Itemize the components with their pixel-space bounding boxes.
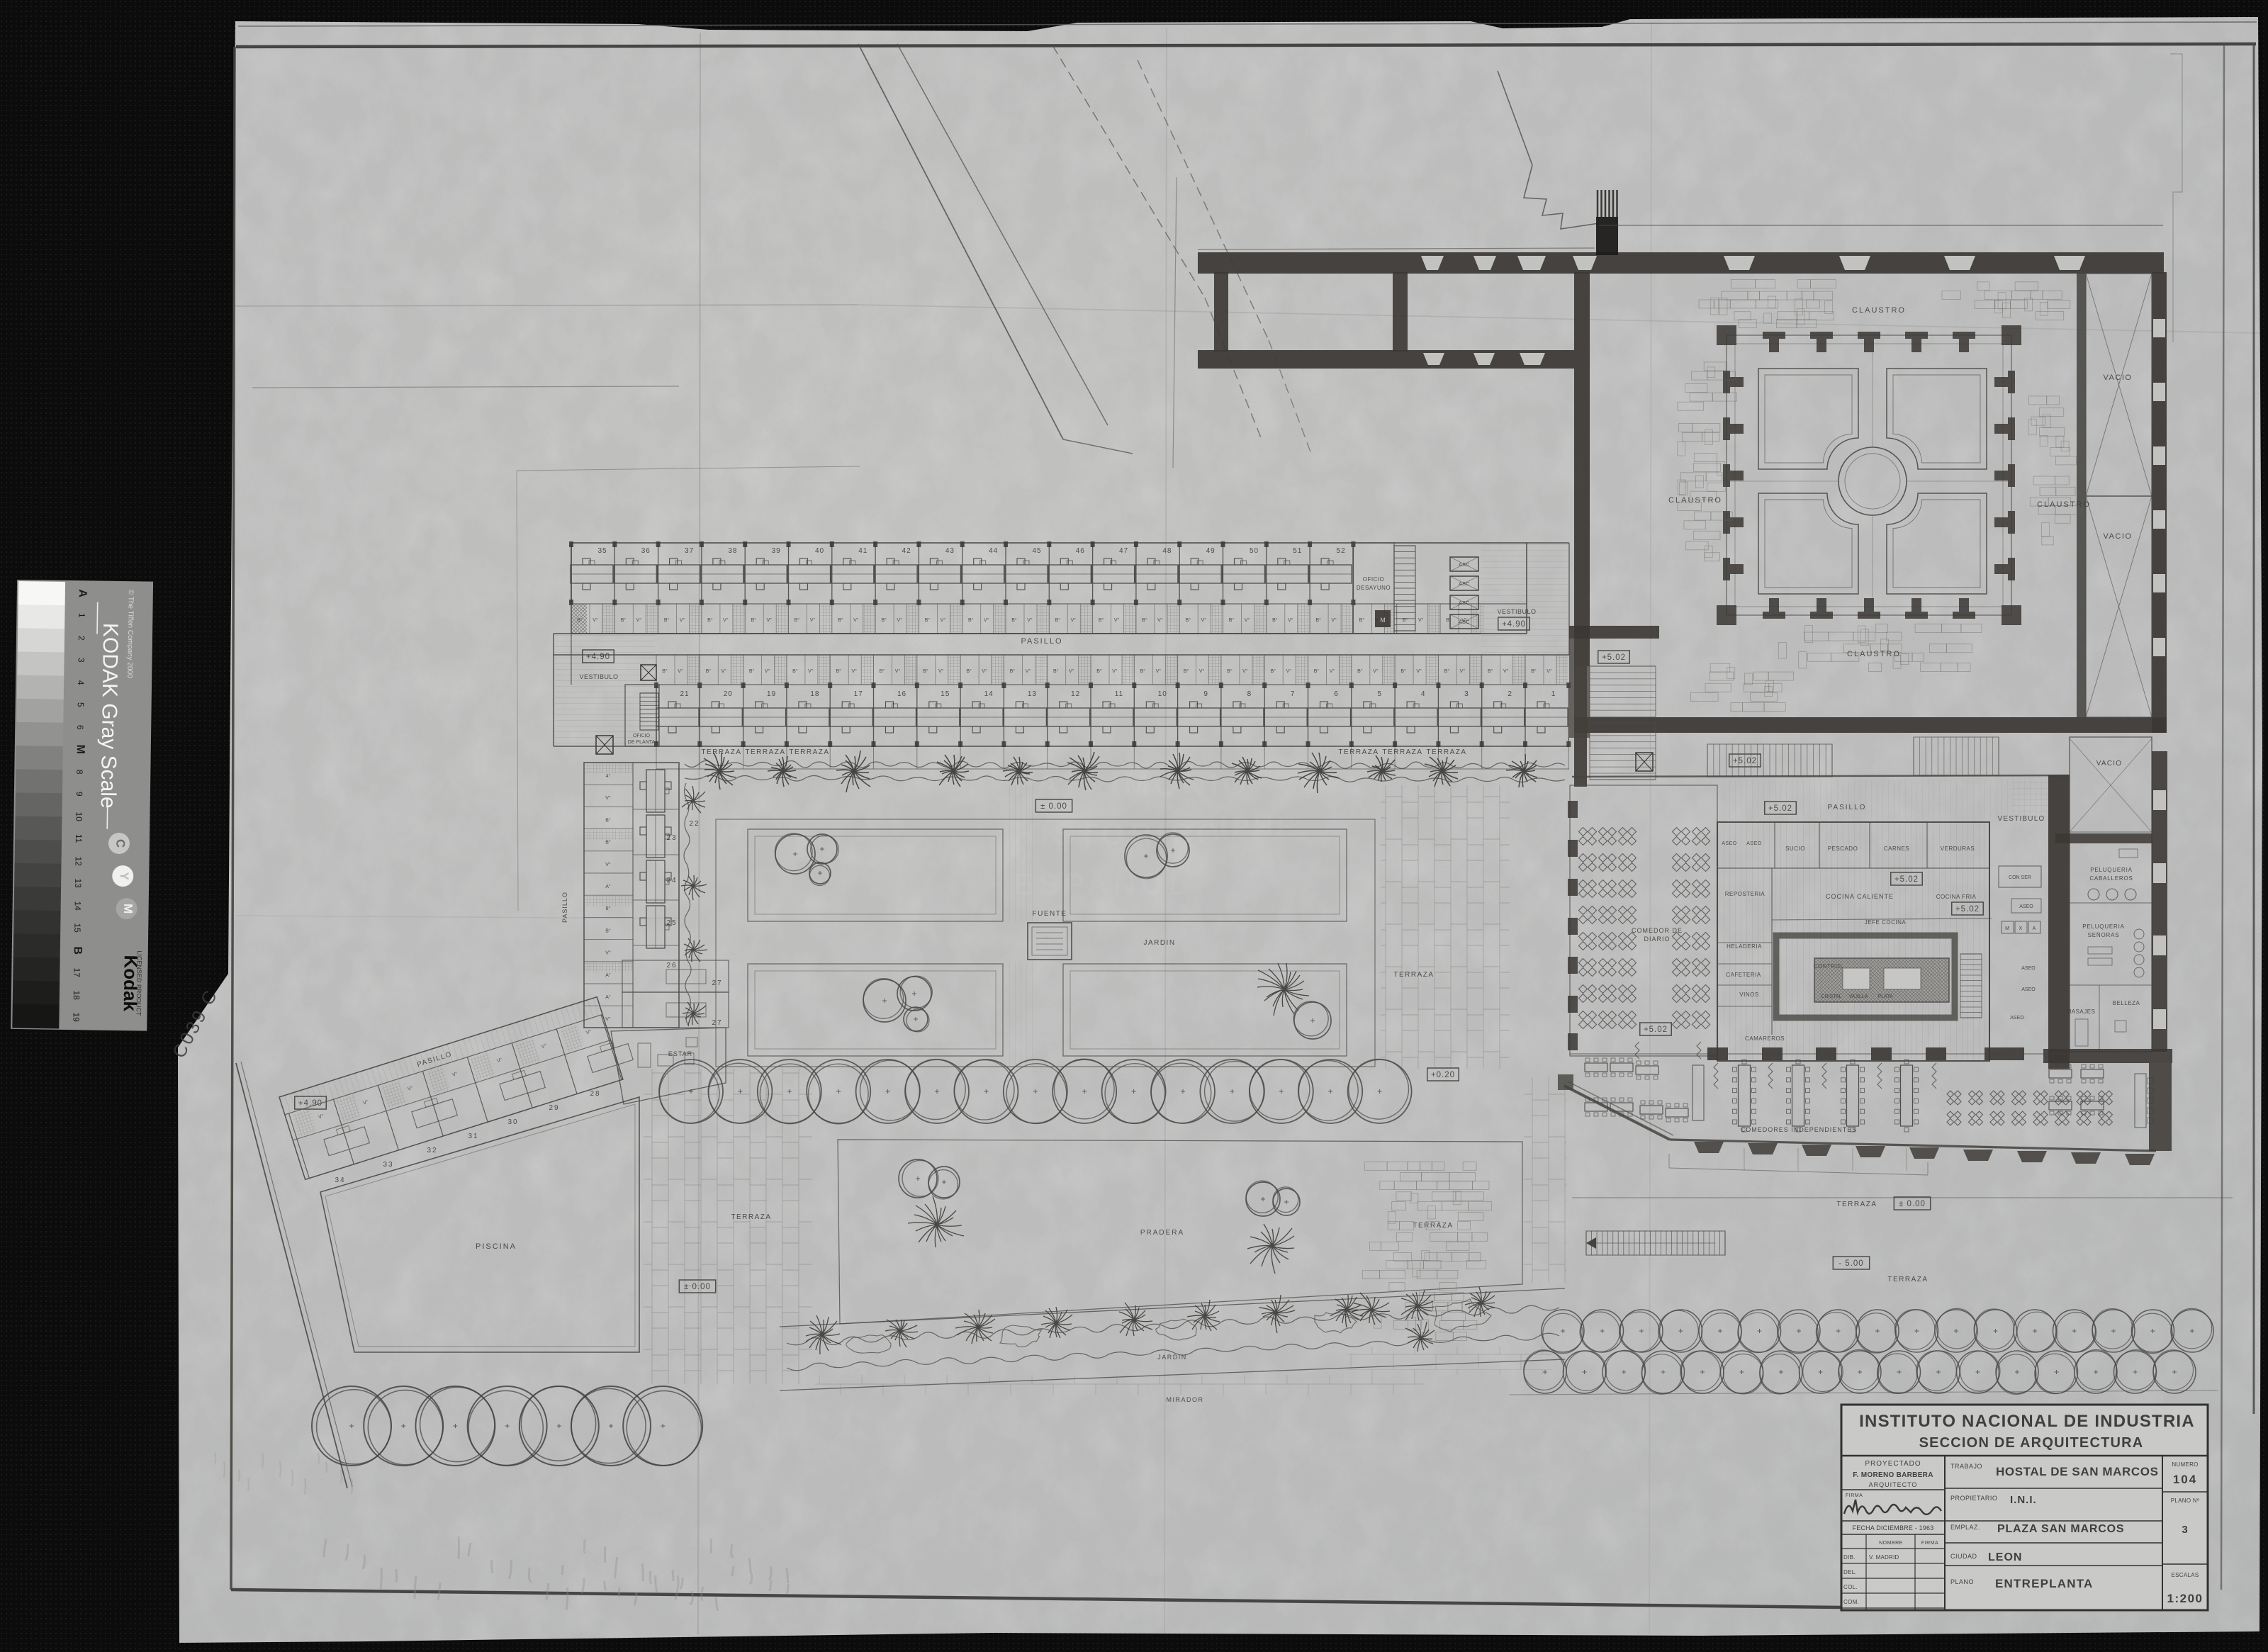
- svg-text:TERRAZA: TERRAZA: [1836, 1201, 1877, 1208]
- svg-text:B°: B°: [1142, 617, 1147, 623]
- svg-text:ASC: ASC: [1459, 601, 1470, 606]
- svg-text:DEL: DEL: [991, 768, 1034, 790]
- svg-text:5: 5: [1378, 690, 1383, 698]
- svg-text:V°: V°: [636, 617, 642, 623]
- svg-text:+5.02: +5.02: [1955, 905, 1980, 914]
- svg-text:+4.90: +4.90: [1502, 620, 1526, 629]
- svg-text:13: 13: [73, 878, 83, 888]
- svg-text:NUMERO: NUMERO: [2172, 1461, 2198, 1468]
- svg-text:41: 41: [858, 547, 868, 555]
- svg-text:35: 35: [597, 547, 607, 555]
- svg-text:V°: V°: [808, 668, 814, 674]
- svg-text:B°: B°: [1270, 668, 1276, 674]
- svg-text:4°: 4°: [606, 773, 611, 779]
- svg-text:+4.90: +4.90: [586, 653, 610, 661]
- svg-text:3: 3: [76, 658, 86, 663]
- svg-text:9: 9: [74, 792, 84, 797]
- svg-text:IPHE: IPHE: [1219, 811, 1299, 843]
- svg-text:48: 48: [1162, 547, 1172, 555]
- svg-text:CAMAREROS: CAMAREROS: [1745, 1035, 1785, 1042]
- svg-text:+5.02: +5.02: [1602, 653, 1626, 662]
- svg-text:29: 29: [549, 1104, 559, 1112]
- svg-text:OFICIO: OFICIO: [633, 734, 651, 738]
- svg-text:PLANO: PLANO: [1950, 1578, 1974, 1585]
- svg-text:51: 51: [1293, 547, 1302, 555]
- svg-text:V°: V°: [895, 668, 901, 674]
- svg-text:21: 21: [680, 690, 689, 698]
- svg-text:COMEDOR DE: COMEDOR DE: [1632, 927, 1683, 934]
- svg-text:45: 45: [1032, 547, 1041, 555]
- svg-text:B°: B°: [605, 928, 611, 933]
- svg-text:V°: V°: [984, 617, 989, 623]
- svg-text:12: 12: [73, 856, 83, 866]
- svg-text:1:200: 1:200: [2167, 1592, 2204, 1605]
- svg-text:B°: B°: [1096, 668, 1102, 674]
- svg-text:ASC: ASC: [1459, 563, 1470, 568]
- svg-text:B°: B°: [881, 617, 887, 623]
- svg-text:+4.90: +4.90: [298, 1099, 322, 1108]
- svg-text:46: 46: [1076, 547, 1085, 555]
- svg-text:B°: B°: [1227, 668, 1233, 674]
- svg-text:B°: B°: [1315, 617, 1321, 623]
- svg-text:SECCION DE ARQUITECTURA: SECCION DE ARQUITECTURA: [1919, 1435, 2144, 1451]
- svg-text:V°: V°: [1503, 668, 1509, 674]
- svg-text:V°: V°: [1112, 668, 1118, 674]
- svg-text:B°: B°: [1099, 617, 1104, 623]
- svg-text:OFICIO: OFICIO: [1363, 576, 1385, 583]
- svg-text:B°: B°: [1055, 617, 1061, 623]
- svg-text:V°: V°: [605, 795, 611, 801]
- svg-text:43: 43: [945, 547, 955, 555]
- svg-text:V°: V°: [1069, 668, 1074, 674]
- svg-text:B°: B°: [795, 617, 800, 623]
- svg-text:CRISTAL: CRISTAL: [1821, 994, 1841, 999]
- svg-text:50: 50: [1250, 547, 1259, 555]
- svg-text:PELUQUERIA: PELUQUERIA: [2090, 867, 2133, 873]
- svg-text:B°: B°: [792, 668, 798, 674]
- svg-text:TERRAZA: TERRAZA: [1413, 1222, 1453, 1230]
- svg-text:HELADERIA: HELADERIA: [1727, 943, 1762, 950]
- svg-text:V°: V°: [680, 617, 685, 623]
- svg-text:32: 32: [427, 1147, 437, 1154]
- svg-text:B°: B°: [1053, 668, 1059, 674]
- svg-text:44: 44: [989, 547, 998, 555]
- svg-text:PESCADO: PESCADO: [1828, 845, 1858, 852]
- svg-text:ASC: ASC: [1459, 620, 1470, 625]
- svg-text:M: M: [74, 744, 86, 754]
- svg-text:VESTIBULO: VESTIBULO: [1497, 608, 1536, 615]
- svg-text:PLATA: PLATA: [1877, 994, 1892, 999]
- svg-text:B°: B°: [1140, 668, 1146, 674]
- svg-text:20: 20: [724, 690, 733, 698]
- svg-text:V°: V°: [766, 617, 772, 623]
- svg-text:12: 12: [1071, 690, 1080, 698]
- svg-text:C: C: [113, 839, 127, 848]
- svg-text:NOMBRE: NOMBRE: [1879, 1541, 1903, 1546]
- svg-text:CIUDAD: CIUDAD: [1950, 1553, 1977, 1560]
- svg-text:B°: B°: [1184, 668, 1189, 674]
- svg-text:DE PLANTA: DE PLANTA: [628, 740, 656, 745]
- svg-text:V°: V°: [1330, 668, 1335, 674]
- svg-text:B°: B°: [621, 617, 627, 623]
- svg-text:CARNES: CARNES: [1884, 845, 1909, 852]
- svg-text:LICENSED PRODUCT: LICENSED PRODUCT: [135, 950, 143, 1016]
- svg-text:A°: A°: [605, 884, 611, 889]
- svg-text:HISTORICO: HISTORICO: [1014, 817, 1225, 852]
- svg-text:CLAUSTRO: CLAUSTRO: [2037, 500, 2091, 509]
- svg-text:V°: V°: [605, 1016, 611, 1022]
- svg-text:B°: B°: [836, 668, 841, 674]
- svg-text:104: 104: [2173, 1473, 2197, 1486]
- svg-text:B°: B°: [1010, 668, 1016, 674]
- svg-text:+5.02: +5.02: [1894, 875, 1919, 884]
- svg-text:FIRMA: FIRMA: [1921, 1541, 1938, 1546]
- svg-text:PASILLO: PASILLO: [1021, 637, 1062, 646]
- svg-text:18: 18: [72, 990, 82, 1000]
- svg-text:TERRAZA: TERRAZA: [1887, 1276, 1928, 1283]
- svg-text:V°: V°: [1286, 668, 1291, 674]
- svg-text:V°: V°: [1114, 617, 1120, 623]
- svg-text:± 0.00: ± 0.00: [684, 1283, 711, 1291]
- svg-text:26: 26: [666, 962, 677, 970]
- svg-text:6: 6: [75, 725, 85, 730]
- svg-text:V°: V°: [1199, 668, 1205, 674]
- svg-text:JEFE COCINA: JEFE COCINA: [1865, 919, 1907, 926]
- svg-text:A°: A°: [605, 972, 611, 978]
- svg-text:V°: V°: [851, 668, 857, 674]
- svg-text:TERRAZA: TERRAZA: [789, 748, 829, 756]
- svg-text:V°: V°: [1027, 617, 1033, 623]
- svg-text:V°: V°: [605, 862, 611, 867]
- svg-text:CLAUSTRO: CLAUSTRO: [1852, 306, 1906, 315]
- svg-text:B°: B°: [749, 668, 755, 674]
- svg-text:8: 8: [1247, 690, 1252, 698]
- svg-text:B°: B°: [1531, 668, 1537, 674]
- svg-text:DIARIO: DIARIO: [1644, 935, 1670, 943]
- svg-text:B°: B°: [1314, 668, 1320, 674]
- svg-text:FECHA DICIEMBRE - 1963: FECHA DICIEMBRE - 1963: [1853, 1524, 1934, 1532]
- svg-text:A°: A°: [605, 994, 611, 1000]
- svg-text:33: 33: [383, 1161, 393, 1169]
- svg-text:ESTAR: ESTAR: [668, 1050, 692, 1057]
- svg-text:JARDIN: JARDIN: [1157, 1354, 1187, 1361]
- svg-text:B°: B°: [1357, 668, 1363, 674]
- svg-text:JARDIN: JARDIN: [1143, 939, 1175, 947]
- svg-text:2: 2: [77, 636, 86, 641]
- svg-text:V°: V°: [1071, 617, 1077, 623]
- svg-text:TRABAJO: TRABAJO: [1950, 1463, 1982, 1470]
- svg-text:22: 22: [689, 820, 700, 828]
- svg-text:V°: V°: [1331, 617, 1337, 623]
- svg-text:24: 24: [666, 877, 677, 884]
- svg-text:COL.: COL.: [1843, 1584, 1858, 1590]
- svg-text:27: 27: [712, 979, 722, 987]
- svg-text:V°: V°: [1156, 668, 1162, 674]
- svg-text:B°: B°: [1229, 617, 1235, 623]
- svg-text:A: A: [2033, 926, 2036, 931]
- svg-text:34: 34: [335, 1176, 345, 1184]
- svg-text:14: 14: [73, 901, 83, 911]
- svg-text:B°: B°: [1272, 617, 1278, 623]
- svg-text:PASILLO: PASILLO: [561, 892, 568, 923]
- svg-text:F. MORENO BARBERA: F. MORENO BARBERA: [1853, 1471, 1933, 1479]
- svg-text:V°: V°: [938, 668, 944, 674]
- svg-text:36: 36: [641, 547, 651, 555]
- svg-text:V°: V°: [1242, 668, 1248, 674]
- svg-text:COCINA FRIA: COCINA FRIA: [1936, 894, 1977, 900]
- svg-text:TERRAZA: TERRAZA: [1382, 748, 1422, 756]
- svg-text:CONTROL: CONTROL: [1814, 963, 1844, 970]
- svg-text:PATRIMONIO: PATRIMONIO: [1014, 768, 1251, 802]
- svg-text:COM.: COM.: [1843, 1599, 1859, 1605]
- svg-text:31: 31: [468, 1133, 478, 1140]
- svg-text:B°: B°: [1488, 668, 1493, 674]
- svg-text:23: 23: [666, 834, 677, 842]
- svg-text:B°: B°: [1185, 617, 1191, 623]
- svg-text:CON SER: CON SER: [2009, 875, 2031, 880]
- svg-text:VERDURAS: VERDURAS: [1941, 845, 1975, 852]
- svg-text:B°: B°: [605, 840, 611, 845]
- svg-text:1: 1: [1551, 690, 1556, 698]
- svg-text:V°: V°: [1026, 668, 1031, 674]
- svg-text:47: 47: [1119, 547, 1128, 555]
- svg-text:8°: 8°: [606, 906, 611, 911]
- svg-text:CLAUSTRO: CLAUSTRO: [1847, 650, 1901, 658]
- svg-text:B°: B°: [1400, 668, 1406, 674]
- svg-text:1: 1: [77, 613, 86, 618]
- svg-text:PRADERA: PRADERA: [1140, 1229, 1184, 1237]
- svg-text:INSTITUTO NACIONAL DE INDUST: INSTITUTO NACIONAL DE INDUSTRIA: [1859, 1412, 2195, 1431]
- svg-text:LEON: LEON: [1988, 1551, 2022, 1563]
- svg-text:V°: V°: [1460, 668, 1466, 674]
- svg-text:VACIO: VACIO: [2096, 760, 2122, 768]
- svg-text:CABALLEROS: CABALLEROS: [2089, 875, 2133, 882]
- svg-text:5: 5: [76, 702, 86, 707]
- svg-text:TERRAZA: TERRAZA: [1338, 748, 1379, 756]
- svg-text:Y: Y: [118, 872, 131, 880]
- svg-text:8: 8: [74, 770, 84, 775]
- svg-text:MASAJES: MASAJES: [2067, 1008, 2096, 1015]
- svg-text:B°: B°: [1011, 617, 1017, 623]
- svg-text:15: 15: [941, 690, 950, 698]
- svg-text:ASEO: ASEO: [1722, 841, 1737, 846]
- svg-text:ARQUITECTO: ARQUITECTO: [1869, 1481, 1918, 1488]
- svg-text:X: X: [2019, 926, 2023, 931]
- svg-text:VACIO: VACIO: [2104, 373, 2133, 382]
- svg-text:ESPAÑOL: ESPAÑOL: [1014, 866, 1191, 901]
- svg-text:PROYECTADO: PROYECTADO: [1865, 1460, 1921, 1468]
- svg-text:PLAZA SAN MARCOS: PLAZA SAN MARCOS: [1997, 1523, 2124, 1535]
- svg-text:CLAUSTRO: CLAUSTRO: [1668, 496, 1722, 505]
- svg-text:HOSTAL DE SAN MARCOS: HOSTAL DE SAN MARCOS: [1996, 1465, 2159, 1478]
- svg-text:FUENTE: FUENTE: [1033, 910, 1067, 918]
- svg-text:25: 25: [666, 919, 677, 927]
- svg-text:18: 18: [810, 690, 819, 698]
- svg-text:ASEO: ASEO: [2010, 1016, 2024, 1021]
- svg-text:TERRAZA: TERRAZA: [745, 748, 785, 756]
- svg-text:B°: B°: [1444, 668, 1450, 674]
- svg-text:28: 28: [590, 1090, 600, 1098]
- svg-text:V°: V°: [1245, 617, 1250, 623]
- svg-text:10: 10: [1158, 690, 1167, 698]
- svg-text:V°: V°: [810, 617, 816, 623]
- svg-text:B°: B°: [706, 668, 712, 674]
- svg-text:V°: V°: [722, 668, 727, 674]
- svg-text:V°: V°: [678, 668, 683, 674]
- svg-text:3: 3: [1464, 690, 1469, 698]
- svg-text:3: 3: [2182, 1524, 2188, 1536]
- svg-text:TERRAZA: TERRAZA: [1393, 971, 1434, 979]
- svg-text:V°: V°: [982, 668, 987, 674]
- svg-text:27: 27: [712, 1019, 722, 1027]
- svg-text:TERRAZA: TERRAZA: [731, 1213, 771, 1221]
- svg-text:B°: B°: [751, 617, 756, 623]
- svg-text:B°: B°: [662, 668, 668, 674]
- svg-text:37: 37: [685, 547, 694, 555]
- svg-text:ASEO: ASEO: [2019, 904, 2033, 909]
- svg-text:V°: V°: [1157, 617, 1163, 623]
- svg-text:M: M: [121, 904, 135, 914]
- svg-text:PELUQUERIA: PELUQUERIA: [2082, 923, 2125, 930]
- svg-text:B°: B°: [605, 817, 611, 823]
- svg-text:TERRAZA: TERRAZA: [1426, 748, 1466, 756]
- svg-text:ASEO: ASEO: [1746, 841, 1762, 846]
- svg-text:VACIO: VACIO: [2104, 532, 2133, 541]
- svg-text:PROPIETARIO: PROPIETARIO: [1950, 1495, 1997, 1502]
- svg-text:A: A: [77, 589, 89, 597]
- svg-text:42: 42: [902, 547, 911, 555]
- svg-text:EMPLAZ.: EMPLAZ.: [1950, 1524, 1980, 1531]
- svg-text:FIRMA: FIRMA: [1846, 1493, 1863, 1498]
- svg-text:11: 11: [74, 834, 84, 843]
- svg-text:V°: V°: [765, 668, 770, 674]
- svg-text:B°: B°: [707, 617, 713, 623]
- svg-text:VINOS: VINOS: [1739, 991, 1758, 998]
- svg-text:CAFETERIA: CAFETERIA: [1726, 972, 1761, 978]
- svg-text:+0.20: +0.20: [1431, 1071, 1455, 1079]
- svg-text:17: 17: [854, 690, 863, 698]
- svg-text:16: 16: [897, 690, 906, 698]
- svg-text:DESAYUNO: DESAYUNO: [1357, 585, 1391, 591]
- svg-text:MIRADOR: MIRADOR: [1167, 1396, 1204, 1403]
- svg-text:7: 7: [1291, 690, 1296, 698]
- svg-text:6: 6: [1334, 690, 1339, 698]
- svg-text:+5.02: +5.02: [1733, 757, 1757, 765]
- svg-text:B°: B°: [1446, 617, 1452, 623]
- svg-text:15: 15: [72, 923, 82, 933]
- svg-text:B: B: [72, 946, 84, 955]
- svg-text:COCINA CALIENTE: COCINA CALIENTE: [1826, 893, 1894, 900]
- svg-text:38: 38: [728, 547, 737, 555]
- svg-text:± 0.00: ± 0.00: [1899, 1200, 1926, 1208]
- svg-text:± 0.00: ± 0.00: [1040, 802, 1067, 811]
- svg-text:ASEO: ASEO: [2021, 987, 2036, 992]
- svg-text:V°: V°: [1546, 668, 1552, 674]
- svg-text:52: 52: [1337, 547, 1346, 555]
- svg-text:ENTREPLANTA: ENTREPLANTA: [1995, 1577, 2094, 1590]
- svg-text:SUCIO: SUCIO: [1785, 845, 1805, 852]
- svg-text:SEÑORAS: SEÑORAS: [2088, 932, 2120, 938]
- svg-text:VAJILLA: VAJILLA: [1849, 994, 1868, 999]
- svg-text:V°: V°: [853, 617, 859, 623]
- svg-text:49: 49: [1206, 547, 1216, 555]
- svg-text:10: 10: [74, 811, 84, 821]
- svg-text:DEL.: DEL.: [1843, 1569, 1857, 1575]
- svg-text:VESTIBULO: VESTIBULO: [579, 673, 618, 680]
- svg-text:V°: V°: [1201, 617, 1206, 623]
- svg-text:13: 13: [1028, 690, 1037, 698]
- svg-text:11: 11: [1115, 690, 1123, 698]
- svg-text:9: 9: [1203, 690, 1208, 698]
- svg-text:B°: B°: [1403, 617, 1408, 623]
- svg-text:M: M: [2005, 926, 2009, 931]
- svg-text:B°: B°: [838, 617, 843, 623]
- svg-text:ESCALAS: ESCALAS: [2171, 1572, 2199, 1578]
- svg-text:M: M: [1380, 617, 1386, 624]
- svg-text:B°: B°: [664, 617, 670, 623]
- svg-text:DIB.: DIB.: [1843, 1554, 1856, 1561]
- svg-text:V°: V°: [1288, 617, 1293, 623]
- svg-text:40: 40: [815, 547, 824, 555]
- svg-text:- 5.00: - 5.00: [1838, 1259, 1863, 1268]
- svg-text:V°: V°: [723, 617, 729, 623]
- svg-text:4: 4: [76, 680, 86, 685]
- svg-text:V°: V°: [1373, 668, 1379, 674]
- svg-text:© The Tiffen Company 2000: © The Tiffen Company 2000: [125, 590, 135, 678]
- svg-text:V°: V°: [897, 617, 902, 623]
- svg-text:COMEDORES INDEPENDIENTES: COMEDORES INDEPENDIENTES: [1741, 1126, 1858, 1133]
- svg-text:V°: V°: [941, 617, 946, 623]
- svg-text:BELLEZA: BELLEZA: [2113, 1000, 2140, 1006]
- svg-text:V°: V°: [605, 950, 611, 956]
- svg-text:PISCINA: PISCINA: [476, 1242, 517, 1251]
- svg-text:ASC: ASC: [1459, 582, 1470, 587]
- svg-text:V°: V°: [1418, 617, 1424, 623]
- svg-text:4: 4: [1421, 690, 1426, 698]
- svg-text:39: 39: [772, 547, 781, 555]
- svg-text:KODAK Gray Scale: KODAK Gray Scale: [96, 623, 123, 809]
- svg-text:PLANO Nº: PLANO Nº: [2171, 1498, 2199, 1504]
- svg-text:14: 14: [984, 690, 994, 698]
- svg-text:ASEO: ASEO: [2021, 966, 2036, 971]
- svg-text:B°: B°: [925, 617, 931, 623]
- svg-text:19: 19: [767, 690, 776, 698]
- svg-text:B°: B°: [1359, 617, 1365, 623]
- svg-text:B°: B°: [923, 668, 928, 674]
- svg-text:B°: B°: [966, 668, 972, 674]
- svg-text:19: 19: [71, 1012, 81, 1022]
- svg-text:17: 17: [72, 967, 82, 977]
- svg-text:B°: B°: [880, 668, 885, 674]
- svg-text:+5.02: +5.02: [1644, 1026, 1668, 1034]
- svg-text:V°: V°: [593, 617, 598, 623]
- svg-text:2: 2: [1508, 690, 1512, 698]
- svg-text:B°: B°: [968, 617, 974, 623]
- svg-text:REPOSTERIA: REPOSTERIA: [1725, 891, 1765, 897]
- svg-text:V. MADRID: V. MADRID: [1869, 1554, 1899, 1561]
- svg-text:I.N.I.: I.N.I.: [2010, 1494, 2037, 1506]
- svg-text:30: 30: [507, 1118, 518, 1126]
- svg-text:V°: V°: [1416, 668, 1422, 674]
